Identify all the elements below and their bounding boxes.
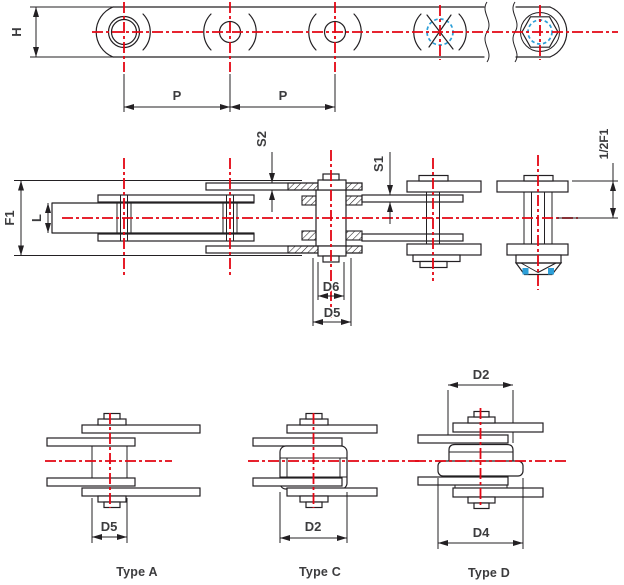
dimension-l: L	[29, 203, 48, 233]
dim-label-f1: F1	[2, 210, 17, 225]
dim-label-half-f1: 1/2F1	[597, 128, 611, 159]
dim-label-h: H	[9, 27, 24, 36]
section-title-type-d: Type D	[468, 566, 510, 580]
chain-technical-drawing: H P P	[0, 0, 624, 585]
section-title-type-c: Type C	[299, 565, 341, 579]
dim-label-s1: S1	[371, 156, 386, 172]
dim-label-p2: P	[279, 88, 288, 103]
dimension-f1: F1	[2, 181, 21, 256]
dim-label-l: L	[29, 214, 44, 222]
cotter-pin-end-right	[548, 268, 554, 275]
section-type-c: D2 Type C	[248, 413, 420, 579]
dimension-half-f1: 1/2F1	[557, 128, 618, 218]
dim-label-d2-d: D2	[473, 367, 490, 382]
dim-label-d4-d: D4	[473, 525, 490, 540]
section-title-type-a: Type A	[116, 565, 157, 579]
dim-label-s2: S2	[254, 131, 269, 147]
dimension-pitch: P P	[124, 74, 335, 112]
top-view-elevation: H P P	[9, 2, 618, 112]
section-type-a: D5 Type A	[45, 413, 200, 579]
pin-assembly-4	[407, 176, 481, 268]
dim-label-d5-plan: D5	[324, 305, 341, 320]
dimension-s1: S1	[371, 152, 390, 224]
dimension-s2: S2	[254, 131, 272, 212]
dim-label-p1: P	[173, 88, 182, 103]
dim-label-d5-a: D5	[101, 519, 118, 534]
section-type-d: D2 D4 Type D	[415, 367, 567, 580]
top-view-centerlines	[92, 2, 618, 72]
pin-assembly-5-with-nut	[497, 176, 568, 275]
plan-view: F1 L S2 S1 1/2F1 D6 D5	[2, 128, 618, 326]
cotter-pin-end-left	[523, 268, 529, 275]
dim-label-d6: D6	[323, 279, 340, 294]
dim-label-d2-c: D2	[305, 519, 322, 534]
drawing-canvas: H P P	[0, 0, 624, 585]
